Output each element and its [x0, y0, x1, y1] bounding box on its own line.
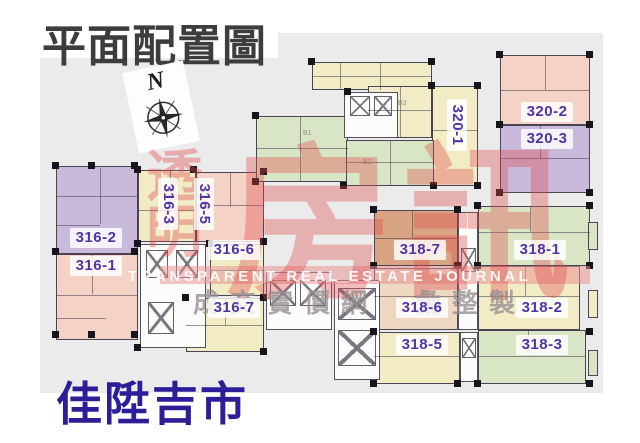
stairwell-shaft: [176, 250, 198, 278]
column-marker: [474, 202, 481, 209]
unit-label-320-2: 320-2: [521, 102, 573, 122]
unit-label-318-7: 318-7: [394, 240, 446, 260]
interior-wall: [412, 210, 413, 238]
column-marker: [586, 262, 593, 269]
stairwell-shaft: [462, 338, 476, 358]
column-marker: [260, 348, 267, 355]
stairwell-shaft: [338, 288, 376, 320]
column-marker: [134, 166, 141, 173]
core-label-b2: B2: [363, 159, 372, 166]
column-marker: [428, 58, 435, 65]
stairwell-shaft: [350, 96, 370, 116]
unit-label-318-6: 318-6: [396, 298, 448, 318]
interior-wall: [210, 270, 264, 271]
stairwell-shaft: [270, 280, 296, 306]
interior-wall: [186, 325, 264, 326]
project-name: 佳陞吉市: [56, 368, 248, 434]
column-marker: [52, 162, 59, 169]
interior-wall: [390, 140, 391, 186]
column-marker: [182, 294, 189, 301]
unit-label-316-6: 316-6: [208, 240, 260, 260]
column-marker: [454, 262, 461, 269]
unit-label-320-3: 320-3: [521, 129, 573, 149]
column-marker: [134, 240, 141, 247]
unit-area-b1: [256, 116, 348, 182]
unit-label-316-3: 316-3: [158, 178, 178, 230]
unit-label-318-1: 318-1: [514, 240, 566, 260]
unit-label-320-1: 320-1: [447, 99, 467, 151]
interior-wall: [56, 318, 106, 319]
column-marker: [454, 380, 461, 387]
column-marker: [454, 206, 461, 213]
interior-wall: [56, 225, 100, 226]
column-marker: [131, 248, 138, 255]
column-marker: [474, 380, 481, 387]
stairwell-shaft: [338, 330, 376, 366]
interior-wall: [374, 356, 460, 357]
interior-wall: [478, 356, 586, 357]
column-marker: [586, 121, 593, 128]
stairwell-shaft: [300, 280, 326, 306]
core-label-b3: B3: [398, 100, 407, 107]
column-marker: [308, 58, 315, 65]
compass-north-label: N: [144, 67, 167, 97]
column-marker: [260, 294, 267, 301]
column-marker: [370, 328, 377, 335]
interior-wall: [478, 232, 590, 233]
column-marker: [134, 344, 141, 351]
interior-wall: [530, 206, 531, 232]
column-marker: [474, 262, 481, 269]
interior-wall: [56, 196, 138, 197]
column-marker: [428, 82, 435, 89]
column-marker: [430, 182, 437, 189]
unit-label-318-2: 318-2: [516, 298, 568, 318]
interior-wall: [525, 266, 526, 296]
column-marker: [344, 88, 351, 95]
unit-label-316-2: 316-2: [70, 228, 122, 248]
stairwell-shaft: [374, 96, 392, 116]
column-marker: [340, 182, 347, 189]
interior-wall: [500, 158, 590, 159]
unit-label-318-3: 318-3: [516, 335, 568, 355]
interior-wall: [340, 62, 341, 90]
column-marker: [496, 121, 503, 128]
interior-wall: [500, 90, 590, 91]
column-marker: [496, 51, 503, 58]
interior-wall: [400, 86, 401, 138]
column-marker: [370, 262, 377, 269]
column-marker: [260, 168, 267, 175]
column-marker: [88, 331, 95, 338]
interior-wall: [312, 76, 432, 77]
column-marker: [586, 189, 593, 196]
interior-wall: [478, 296, 580, 297]
stairwell-shaft: [146, 250, 168, 278]
interior-wall: [56, 295, 138, 296]
column-marker: [586, 202, 593, 209]
column-marker: [190, 166, 197, 173]
column-marker: [88, 162, 95, 169]
column-marker: [586, 328, 593, 335]
floorplan-page: 平面配置圖 N 透明 房訊 TRANSPARENT REAL ESTATE JO…: [0, 0, 640, 443]
column-marker: [370, 206, 377, 213]
balcony-bump: [588, 290, 598, 318]
column-marker: [260, 238, 267, 245]
interior-wall: [300, 116, 301, 182]
column-marker: [496, 189, 503, 196]
interior-wall: [374, 238, 458, 239]
column-marker: [52, 248, 59, 255]
unit-label-316-1: 316-1: [70, 256, 122, 276]
column-marker: [474, 182, 481, 189]
interior-wall: [380, 62, 381, 90]
column-marker: [370, 380, 377, 387]
unit-label-316-7: 316-7: [208, 298, 260, 318]
interior-wall: [256, 148, 348, 149]
balcony-bump: [588, 222, 598, 250]
core-label-b1: B1: [303, 130, 312, 137]
column-marker: [586, 51, 593, 58]
column-marker: [52, 331, 59, 338]
interior-wall: [545, 55, 546, 90]
interior-wall: [374, 296, 458, 297]
unit-label-318-5: 318-5: [396, 335, 448, 355]
stairwell-shaft: [148, 302, 174, 334]
interior-wall: [230, 172, 231, 207]
balcony-bump: [588, 350, 598, 376]
compass-rose-icon: [136, 90, 191, 145]
column-marker: [252, 178, 259, 185]
column-marker: [586, 380, 593, 387]
unit-label-316-5: 316-5: [194, 178, 214, 230]
column-marker: [474, 82, 481, 89]
column-marker: [131, 331, 138, 338]
column-marker: [252, 112, 259, 119]
